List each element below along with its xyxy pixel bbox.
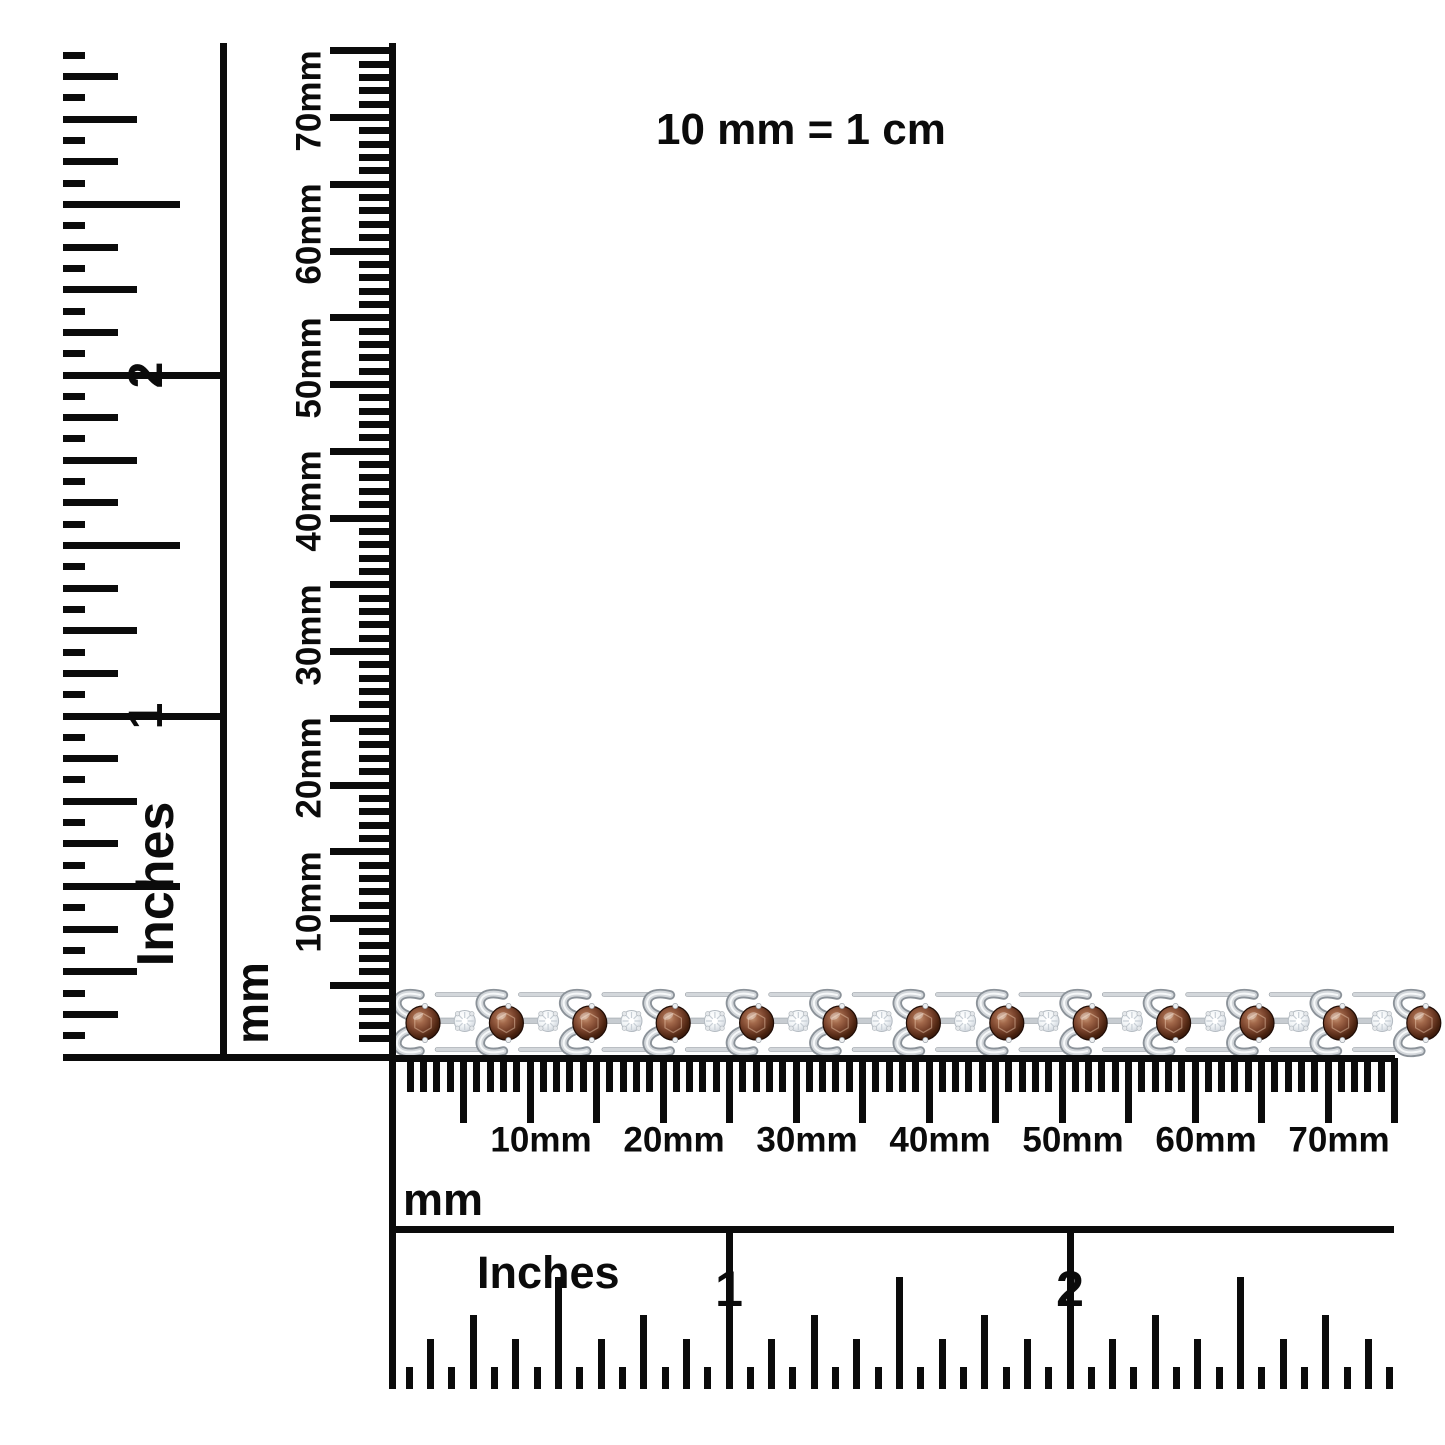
- inch-tick: [853, 1339, 860, 1389]
- horizontal-inches-unit-label: Inches: [477, 1250, 620, 1295]
- mm-tick: [1138, 1058, 1145, 1092]
- mm-tick: [330, 982, 392, 989]
- mm-tick: [359, 942, 392, 949]
- mm-tick: [686, 1058, 693, 1092]
- mm-tick-label: 60mm: [292, 183, 327, 284]
- inch-tick: [1152, 1315, 1159, 1389]
- mm-tick: [359, 474, 392, 481]
- mm-tick: [359, 541, 392, 548]
- inch-tick: [939, 1339, 946, 1389]
- inch-tick: [63, 840, 118, 847]
- mm-tick: [359, 928, 392, 935]
- inch-tick: [63, 1032, 85, 1039]
- diamond-accent: [1205, 1011, 1226, 1032]
- mm-tick-label: 10mm: [292, 851, 327, 952]
- mm-tick: [359, 261, 392, 268]
- mm-tick: [1218, 1058, 1225, 1092]
- inch-tick: [63, 542, 180, 549]
- mm-tick: [1098, 1058, 1105, 1092]
- mm-tick: [359, 621, 392, 628]
- mm-tick: [1178, 1058, 1185, 1092]
- inch-tick: [1301, 1367, 1308, 1389]
- mm-tick: [646, 1058, 653, 1092]
- inch-tick: [63, 883, 180, 890]
- mm-tick: [330, 915, 392, 922]
- inch-tick: [63, 499, 118, 506]
- mm-tick: [992, 1058, 999, 1123]
- mm-tick: [580, 1058, 587, 1092]
- mm-tick: [819, 1058, 826, 1092]
- mm-tick: [359, 501, 392, 508]
- mm-tick: [779, 1058, 786, 1092]
- inch-tick: [1237, 1277, 1244, 1389]
- mm-tick: [1125, 1058, 1132, 1123]
- mm-tick: [1378, 1058, 1385, 1092]
- diamond-accent: [621, 1011, 642, 1032]
- inch-tick: [63, 180, 85, 187]
- mm-tick: [359, 822, 392, 829]
- inch-tick: [63, 776, 85, 783]
- brown-gemstone: [656, 1003, 690, 1042]
- mm-tick-label: 70mm: [292, 50, 327, 151]
- mm-tick: [330, 848, 392, 855]
- mm-tick: [846, 1058, 853, 1092]
- inch-tick: [576, 1367, 583, 1389]
- mm-tick: [359, 755, 392, 762]
- mm-tick: [359, 808, 392, 815]
- mm-tick: [359, 955, 392, 962]
- mm-tick: [979, 1058, 986, 1092]
- mm-tick: [1072, 1058, 1079, 1092]
- mm-tick: [330, 181, 392, 188]
- diamond-accent: [1288, 1011, 1309, 1032]
- mm-tick: [1311, 1058, 1318, 1092]
- inch-tick: [63, 201, 180, 208]
- diamond-accent: [955, 1011, 976, 1032]
- brown-gemstone: [573, 1003, 607, 1042]
- diamond-accent: [538, 1011, 559, 1032]
- inch-tick: [63, 244, 118, 251]
- mm-tick: [433, 1058, 440, 1092]
- mm-tick: [713, 1058, 720, 1092]
- mm-tick: [359, 701, 392, 708]
- mm-tick: [726, 1058, 733, 1123]
- inch-tick: [1173, 1367, 1180, 1389]
- mm-tick: [330, 114, 392, 121]
- inch-tick: [63, 734, 85, 741]
- inch-tick: [960, 1367, 967, 1389]
- inch-tick: [640, 1315, 647, 1389]
- mm-tick: [359, 234, 392, 241]
- mm-tick: [965, 1058, 972, 1092]
- mm-tick-label: 50mm: [1022, 1123, 1123, 1158]
- brown-gemstone: [1407, 1003, 1441, 1042]
- inch-tick: [63, 819, 85, 826]
- mm-tick: [359, 461, 392, 468]
- mm-tick: [359, 768, 392, 775]
- mm-tick: [1285, 1058, 1292, 1092]
- bracelet-photo-svg: [396, 985, 1445, 1061]
- mm-tick: [359, 688, 392, 695]
- mm-tick: [407, 1058, 414, 1092]
- mm-tick: [359, 1022, 392, 1029]
- inch-tick: [63, 585, 118, 592]
- inch-ruler-edge-line: [220, 43, 227, 1057]
- mm-tick: [359, 408, 392, 415]
- mm-tick-label: 10mm: [490, 1123, 591, 1158]
- mm-tick: [359, 74, 392, 81]
- inch-tick: [1216, 1367, 1223, 1389]
- mm-tick-label: 60mm: [1155, 1123, 1256, 1158]
- mm-tick: [330, 515, 392, 522]
- inch-tick: [598, 1339, 605, 1389]
- mm-tick: [1245, 1058, 1252, 1092]
- inch-tick: [63, 1011, 118, 1018]
- inch-tick: [534, 1367, 541, 1389]
- inch-tick: [63, 926, 118, 933]
- mm-tick: [912, 1058, 919, 1092]
- inch-tick: [1130, 1367, 1137, 1389]
- inch-tick: [811, 1315, 818, 1389]
- mm-tick: [359, 968, 392, 975]
- inch-tick: [63, 755, 118, 762]
- mm-tick: [553, 1058, 560, 1092]
- inch-tick: [63, 968, 137, 975]
- mm-tick: [699, 1058, 706, 1092]
- inch-tick: [63, 670, 118, 677]
- inch-tick: [1386, 1367, 1393, 1389]
- inch-tick: [1322, 1315, 1329, 1389]
- inch-tick: [406, 1367, 413, 1389]
- inch-tick: [63, 414, 118, 421]
- inch-tick: [917, 1367, 924, 1389]
- mm-tick: [1192, 1058, 1199, 1123]
- mm-tick: [460, 1058, 467, 1123]
- brown-gemstone: [1073, 1003, 1107, 1042]
- mm-tick: [359, 555, 392, 562]
- mm-tick: [359, 207, 392, 214]
- mm-tick: [359, 221, 392, 228]
- mm-tick: [473, 1058, 480, 1092]
- mm-tick: [359, 341, 392, 348]
- brown-gemstone: [489, 1003, 523, 1042]
- horizontal-mm-unit-label: mm: [403, 1177, 483, 1222]
- inch-tick: [63, 329, 118, 336]
- inch-number: 2: [1056, 1264, 1084, 1314]
- mm-tick: [1045, 1058, 1052, 1092]
- mm-tick: [527, 1058, 534, 1123]
- mm-tick: [359, 568, 392, 575]
- mm-tick: [926, 1058, 933, 1123]
- mm-tick: [593, 1058, 600, 1123]
- inch-tick: [1258, 1367, 1265, 1389]
- mm-tick: [359, 795, 392, 802]
- inch-tick: [619, 1367, 626, 1389]
- mm-tick: [359, 421, 392, 428]
- inch-tick: [470, 1315, 477, 1389]
- inch-tick: [63, 862, 85, 869]
- inch-tick: [981, 1315, 988, 1389]
- mm-tick: [500, 1058, 507, 1092]
- bracelet-photo: [396, 985, 1445, 1061]
- inch-tick: [747, 1367, 754, 1389]
- inch-tick: [1045, 1367, 1052, 1389]
- inch-tick: [427, 1339, 434, 1389]
- mm-tick: [487, 1058, 494, 1092]
- mm-tick: [859, 1058, 866, 1123]
- mm-tick: [1231, 1058, 1238, 1092]
- mm-tick: [447, 1058, 454, 1092]
- mm-tick: [1059, 1058, 1066, 1123]
- brown-gemstone: [740, 1003, 774, 1042]
- mm-tick: [1005, 1058, 1012, 1092]
- diamond-accent: [1038, 1011, 1059, 1032]
- mm-tick: [359, 328, 392, 335]
- inch-tick: [63, 435, 85, 442]
- mm-tick: [359, 61, 392, 68]
- mm-tick: [359, 87, 392, 94]
- mm-tick-label: 70mm: [1288, 1123, 1389, 1158]
- brown-gemstone: [1323, 1003, 1357, 1042]
- mm-tick: [359, 875, 392, 882]
- mm-tick: [330, 581, 392, 588]
- brown-gemstone: [1157, 1003, 1191, 1042]
- diamond-accent: [871, 1011, 892, 1032]
- inch-tick: [63, 158, 118, 165]
- inch-tick: [1344, 1367, 1351, 1389]
- inch-tick: [63, 606, 85, 613]
- mm-tick: [1258, 1058, 1265, 1123]
- mm-tick: [806, 1058, 813, 1092]
- mm-tick: [359, 434, 392, 441]
- mm-tick: [606, 1058, 613, 1092]
- mm-tick: [330, 448, 392, 455]
- inch-tick: [1024, 1339, 1031, 1389]
- mm-tick: [872, 1058, 879, 1092]
- mm-tick: [793, 1058, 800, 1123]
- mm-tick: [330, 715, 392, 722]
- mm-tick-label: 40mm: [292, 450, 327, 551]
- inch-tick: [63, 137, 85, 144]
- mm-tick: [330, 248, 392, 255]
- mm-tick: [832, 1058, 839, 1092]
- mm-tick: [359, 595, 392, 602]
- inch-tick: [555, 1277, 562, 1389]
- mm-tick: [359, 288, 392, 295]
- inch-tick: [63, 649, 85, 656]
- vertical-mm-unit-label: mm: [229, 962, 275, 1044]
- diamond-accent: [1372, 1011, 1393, 1032]
- inch-number: 1: [123, 703, 171, 730]
- mm-tick: [359, 301, 392, 308]
- mm-tick: [1165, 1058, 1172, 1092]
- inch-tick: [63, 116, 137, 123]
- inch-tick: [683, 1339, 690, 1389]
- inch-tick: [448, 1367, 455, 1389]
- mm-tick: [886, 1058, 893, 1092]
- inch-tick: [1280, 1339, 1287, 1389]
- mm-tick: [1205, 1058, 1212, 1092]
- inch-tick: [63, 265, 85, 272]
- inch-number: 1: [715, 1264, 743, 1314]
- mm-tick: [753, 1058, 760, 1092]
- diamond-accent: [704, 1011, 725, 1032]
- inch-tick: [512, 1339, 519, 1389]
- mm-tick: [566, 1058, 573, 1092]
- diamond-accent: [1121, 1011, 1142, 1032]
- brown-gemstone: [990, 1003, 1024, 1042]
- inch-tick: [1194, 1339, 1201, 1389]
- inch-tick: [832, 1367, 839, 1389]
- mm-tick: [1271, 1058, 1278, 1092]
- mm-tick: [513, 1058, 520, 1092]
- mm-tick: [1032, 1058, 1039, 1092]
- mm-tick: [359, 902, 392, 909]
- mm-tick: [330, 381, 392, 388]
- diamond-accent: [788, 1011, 809, 1032]
- mm-tick: [1351, 1058, 1358, 1092]
- mm-tick: [359, 1008, 392, 1015]
- inch-tick: [63, 521, 85, 528]
- inch-tick: [875, 1367, 882, 1389]
- mm-tick: [1325, 1058, 1332, 1123]
- brown-gemstone: [906, 1003, 940, 1042]
- mm-tick: [359, 608, 392, 615]
- mm-tick: [359, 635, 392, 642]
- inch-tick: [1003, 1367, 1010, 1389]
- mm-tick: [633, 1058, 640, 1092]
- mm-tick-label: 30mm: [292, 584, 327, 685]
- mm-tick: [673, 1058, 680, 1092]
- inch-tick: [1109, 1339, 1116, 1389]
- inch-tick: [63, 478, 85, 485]
- inch-tick: [1365, 1339, 1372, 1389]
- mm-tick: [359, 488, 392, 495]
- inch-tick: [63, 990, 85, 997]
- mm-tick: [359, 728, 392, 735]
- mm-tick: [359, 127, 392, 134]
- mm-tick: [1338, 1058, 1345, 1092]
- mm-tick: [359, 661, 392, 668]
- inch-tick: [1088, 1367, 1095, 1389]
- inch-tick: [63, 73, 118, 80]
- mm-tick: [359, 862, 392, 869]
- mm-tick: [359, 394, 392, 401]
- mm-tick: [952, 1058, 959, 1092]
- mm-tick: [359, 354, 392, 361]
- brown-gemstone: [1240, 1003, 1274, 1042]
- inch-tick: [63, 691, 85, 698]
- mm-tick: [660, 1058, 667, 1123]
- mm-tick: [359, 528, 392, 535]
- inch-tick: [63, 52, 85, 59]
- mm-tick: [359, 835, 392, 842]
- mm-tick: [359, 101, 392, 108]
- mm-tick: [330, 47, 392, 54]
- mm-tick: [359, 995, 392, 1002]
- mm-tick: [1019, 1058, 1026, 1092]
- mm-tick: [359, 274, 392, 281]
- mm-tick: [620, 1058, 627, 1092]
- mm-tick: [359, 888, 392, 895]
- mm-tick: [330, 648, 392, 655]
- mm-tick: [1112, 1058, 1119, 1092]
- mm-tick: [330, 314, 392, 321]
- inch-tick: [63, 393, 85, 400]
- inch-tick: [491, 1367, 498, 1389]
- inch-tick: [789, 1367, 796, 1389]
- inch-tick: [704, 1367, 711, 1389]
- inch-tick: [63, 947, 85, 954]
- mm-tick-label: 30mm: [756, 1123, 857, 1158]
- mm-tick: [1152, 1058, 1159, 1092]
- mm-tick: [739, 1058, 746, 1092]
- mm-tick: [359, 741, 392, 748]
- mm-tick-label: 50mm: [292, 317, 327, 418]
- inch-tick: [63, 286, 137, 293]
- mm-tick: [359, 675, 392, 682]
- inch-tick: [63, 222, 85, 229]
- mm-tick: [359, 167, 392, 174]
- inch-tick: [63, 308, 85, 315]
- mm-tick: [359, 154, 392, 161]
- mm-tick: [330, 782, 392, 789]
- inch-tick: [63, 627, 137, 634]
- inch-tick: [63, 563, 85, 570]
- brown-gemstone: [406, 1003, 440, 1042]
- inch-tick: [768, 1339, 775, 1389]
- inch-tick: [662, 1367, 669, 1389]
- brown-gemstone: [823, 1003, 857, 1042]
- mm-tick: [540, 1058, 547, 1092]
- inch-tick: [896, 1277, 903, 1389]
- scale-note: 10 mm = 1 cm: [656, 108, 946, 152]
- mm-tick: [766, 1058, 773, 1092]
- mm-tick: [1085, 1058, 1092, 1092]
- mm-tick-label: 20mm: [292, 717, 327, 818]
- inch-tick: [63, 94, 85, 101]
- mm-tick: [939, 1058, 946, 1092]
- mm-tick-label: 40mm: [889, 1123, 990, 1158]
- horizontal-inch-ruler-line: [392, 1226, 1394, 1233]
- size-chart: 10 mm = 1 cm Inches mm mm Inches 1210mm2…: [0, 0, 1445, 1445]
- mm-tick: [420, 1058, 427, 1092]
- mm-tick: [1298, 1058, 1305, 1092]
- inch-tick: [63, 350, 85, 357]
- mm-tick: [1391, 1058, 1398, 1123]
- diamond-accent: [454, 1011, 475, 1032]
- mm-tick-label: 20mm: [623, 1123, 724, 1158]
- mm-tick: [1364, 1058, 1371, 1092]
- inch-tick: [63, 457, 137, 464]
- rulers-corner-baseline: [63, 1054, 392, 1061]
- mm-tick: [359, 194, 392, 201]
- mm-tick: [359, 141, 392, 148]
- inch-number: 2: [123, 362, 171, 389]
- mm-tick: [899, 1058, 906, 1092]
- mm-tick: [359, 368, 392, 375]
- inch-tick: [63, 798, 137, 805]
- mm-tick: [359, 1035, 392, 1042]
- inch-tick: [63, 904, 85, 911]
